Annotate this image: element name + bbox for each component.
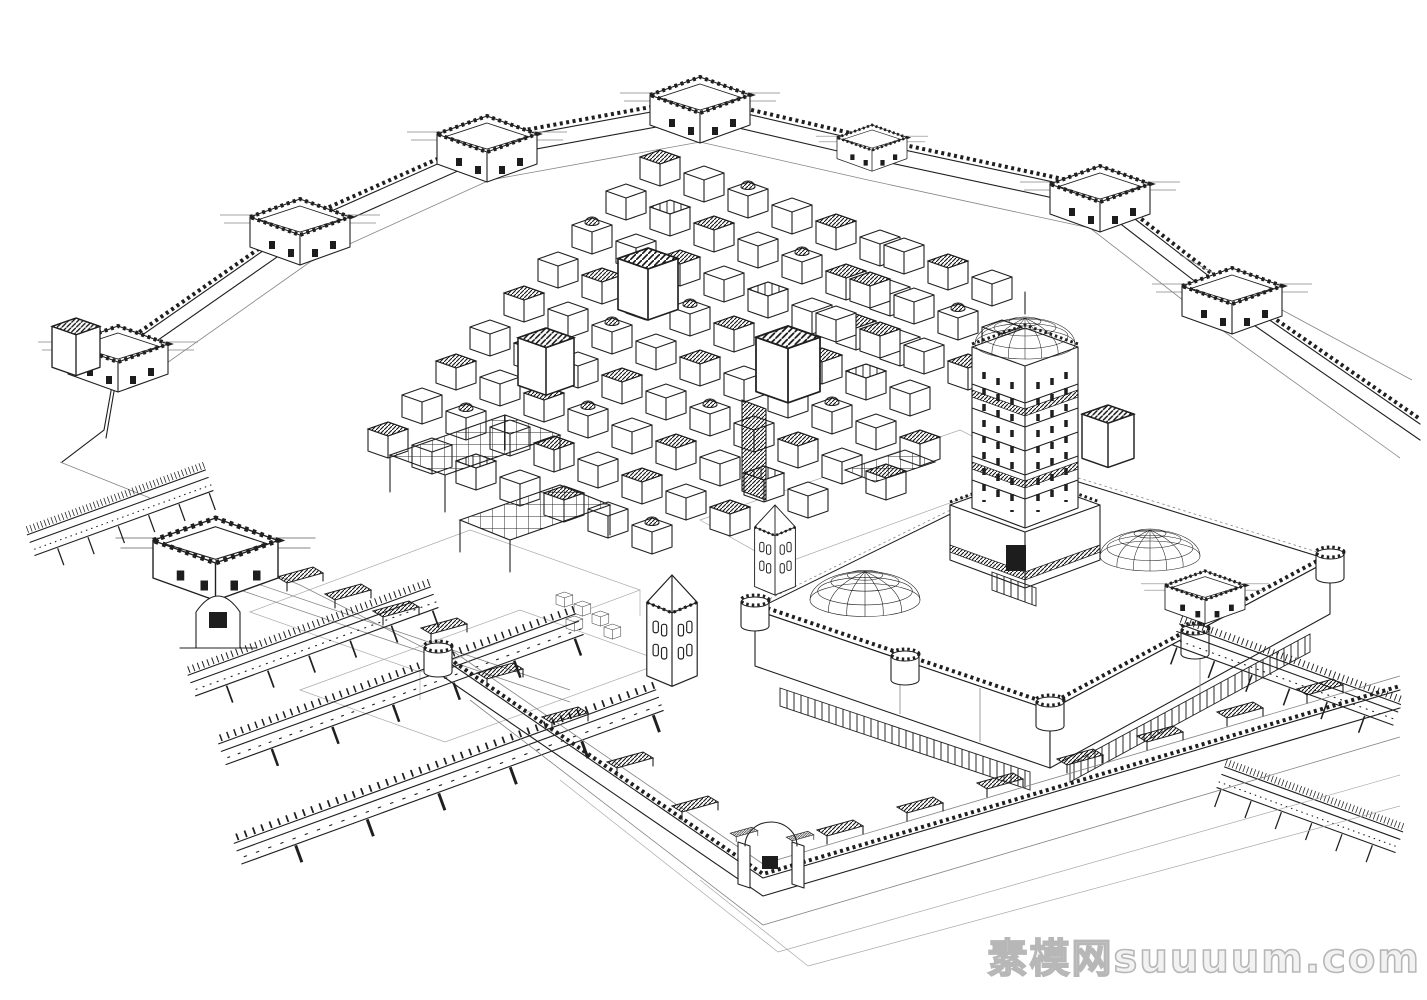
house xyxy=(650,200,690,236)
house xyxy=(504,286,544,322)
house xyxy=(694,216,734,252)
house xyxy=(850,272,890,308)
terrace-turret xyxy=(891,649,919,685)
bridge xyxy=(217,609,587,774)
house xyxy=(592,317,632,354)
house xyxy=(812,397,852,434)
palace-annex xyxy=(1082,405,1134,467)
house xyxy=(538,252,578,288)
watermark: 素模网suuuum.com xyxy=(988,926,1421,984)
house xyxy=(748,282,788,318)
market-crate xyxy=(574,601,591,616)
bridge xyxy=(233,685,667,873)
house xyxy=(710,500,750,536)
south-gate xyxy=(730,822,814,888)
bell-tower xyxy=(755,505,796,595)
house xyxy=(582,268,622,304)
market-crate xyxy=(556,592,573,607)
house xyxy=(640,150,680,186)
gate-tower-east xyxy=(1152,268,1312,334)
house xyxy=(884,238,924,274)
medina-district xyxy=(368,150,1022,554)
house xyxy=(578,452,618,488)
house xyxy=(856,414,896,450)
house xyxy=(684,166,724,202)
house xyxy=(666,484,706,520)
house xyxy=(816,306,856,342)
terrace-turret xyxy=(741,595,769,631)
house xyxy=(904,338,944,374)
bell-tower xyxy=(647,575,697,686)
house xyxy=(860,322,900,358)
house xyxy=(602,368,642,404)
house xyxy=(728,181,768,218)
large-building xyxy=(756,326,820,403)
house xyxy=(622,468,662,504)
large-building xyxy=(518,328,574,395)
house xyxy=(782,247,822,284)
house xyxy=(632,517,672,554)
gate-tower xyxy=(220,199,380,265)
walkway-right xyxy=(1213,762,1404,862)
outwork-building xyxy=(52,318,100,376)
house xyxy=(714,316,754,352)
palace-tower xyxy=(950,292,1134,606)
wall-awning xyxy=(672,796,718,820)
wall-awning xyxy=(542,707,588,731)
house xyxy=(572,217,612,254)
market-awning xyxy=(325,584,371,608)
west-gate-tower xyxy=(116,518,316,601)
house xyxy=(772,198,812,234)
market-crate xyxy=(592,611,609,626)
lattice-dome-right xyxy=(1100,529,1200,571)
terrace-turret xyxy=(1181,623,1209,659)
house xyxy=(890,380,930,416)
lattice-dome-left xyxy=(810,570,920,616)
terrace-turret xyxy=(1316,547,1344,583)
house xyxy=(606,184,646,220)
house xyxy=(636,334,676,370)
page: { "canvas": { "background": "#ffffff", "… xyxy=(0,0,1427,1000)
house xyxy=(402,388,442,424)
wall-awning xyxy=(1217,702,1263,726)
house xyxy=(738,232,778,268)
large-building xyxy=(618,248,678,320)
house xyxy=(700,450,740,486)
minaret-tower xyxy=(742,400,766,500)
house xyxy=(470,320,510,356)
city-wireframe-illustration xyxy=(0,0,1427,1000)
house xyxy=(972,270,1012,306)
market-awning xyxy=(421,618,467,642)
house xyxy=(436,354,476,390)
house xyxy=(612,418,652,454)
house xyxy=(480,370,520,406)
house xyxy=(690,399,730,436)
house xyxy=(704,266,744,302)
house xyxy=(646,384,686,420)
house xyxy=(788,482,828,518)
left-gate-complex xyxy=(116,518,316,648)
house xyxy=(938,303,978,340)
house xyxy=(656,434,696,470)
house xyxy=(894,288,934,324)
wall-awning xyxy=(817,820,863,844)
house xyxy=(778,432,818,468)
corner-turret xyxy=(424,641,452,677)
market-crate xyxy=(604,624,621,639)
house xyxy=(680,350,720,386)
house xyxy=(928,254,968,290)
house xyxy=(846,364,886,400)
house xyxy=(568,401,608,438)
terrace-turret xyxy=(1036,695,1064,731)
house xyxy=(816,214,856,250)
palace-portal xyxy=(1006,545,1026,571)
market-awning xyxy=(373,601,419,625)
